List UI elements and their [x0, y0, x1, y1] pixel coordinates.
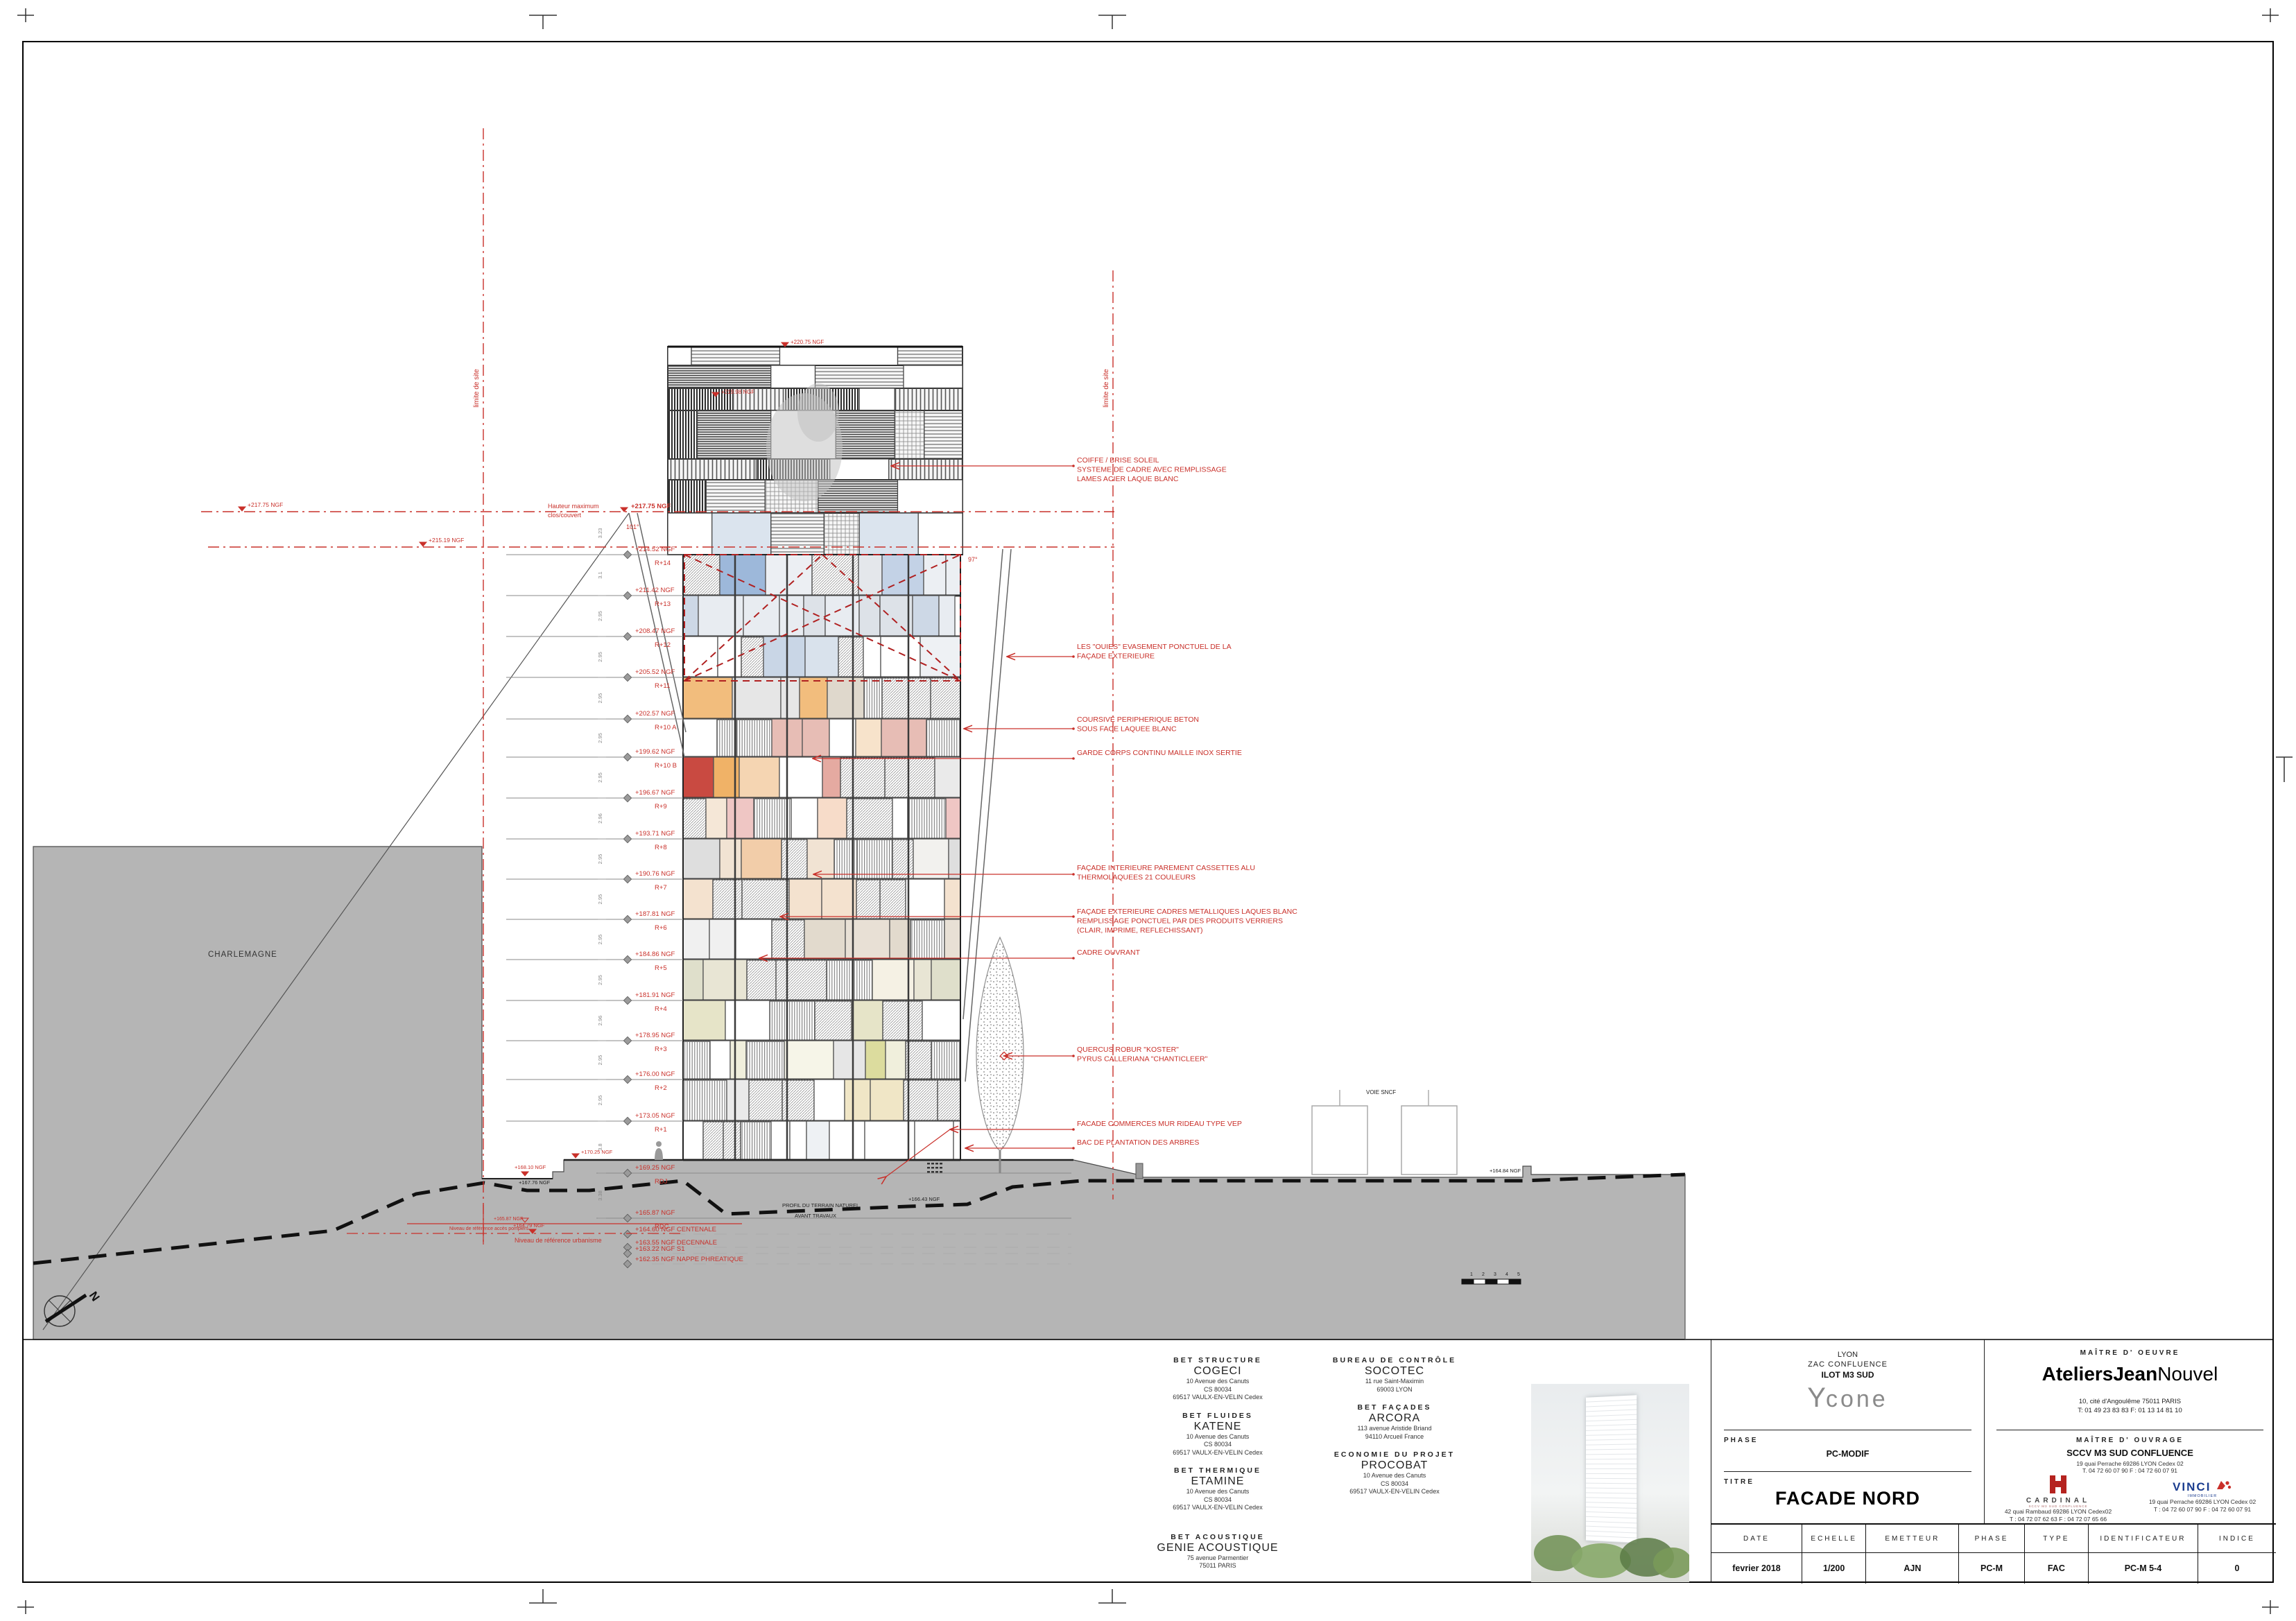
consultant-address: 10 Avenue des Canuts: [1137, 1488, 1298, 1496]
vinci-name: VINCI: [2173, 1480, 2211, 1493]
ycone-logo: Ycone: [1711, 1382, 1984, 1414]
level-name: R+8: [655, 844, 667, 851]
level-value: +208.47 NGF: [635, 627, 675, 635]
scale-number: 3: [1494, 1272, 1496, 1277]
water-level-label: +162.35 NGF NAPPE PHREATIQUE: [635, 1256, 743, 1263]
sheet-title: FACADE NORD: [1711, 1488, 1984, 1509]
consultant-address: 75011 PARIS: [1137, 1562, 1298, 1570]
annotation-text: THERMOLAQUEES 21 COULEURS: [1077, 874, 1196, 882]
ngf-top-label: +220.75 NGF: [791, 339, 824, 345]
dimension-label: 2.95: [597, 772, 603, 783]
consultant-name: COGECI: [1137, 1365, 1298, 1378]
ajn-ateliers: Ateliers: [2042, 1363, 2114, 1385]
level-name: R+2: [655, 1084, 667, 1092]
cardinal-address: 42 quai Rambaud 69286 LYON Cedex02: [1996, 1508, 2121, 1516]
level-name: R+1: [655, 1126, 667, 1134]
level-value: +199.62 NGF: [635, 748, 675, 756]
scale-number: 2: [1482, 1272, 1485, 1277]
level-value: +196.67 NGF: [635, 789, 675, 797]
level-name: RDJ: [655, 1178, 668, 1186]
dimension-label: 2.95: [597, 1055, 603, 1066]
charlemagne-label: CHARLEMAGNE: [208, 951, 277, 959]
table-value: AJN: [1866, 1553, 1958, 1584]
annotation-text: LES "OUIES" EVASEMENT PONCTUEL DE LA: [1077, 643, 1232, 651]
level-value: +165.87 NGF: [635, 1209, 675, 1217]
consultant-address: CS 80034: [1137, 1386, 1298, 1394]
table-header: TYPE: [2025, 1525, 2088, 1553]
level-name: R+13: [655, 600, 671, 608]
level-name: R+7: [655, 884, 667, 892]
consultant-address: 10 Avenue des Canuts: [1137, 1378, 1298, 1386]
table-value: PC-M: [1959, 1553, 2023, 1584]
ngf-top-label: +219.98 NGF: [721, 389, 754, 395]
water-level-label: +164.60 NGF CENTENALE: [635, 1226, 716, 1233]
annotation-text: COIFFE / BRISE SOLEIL: [1077, 456, 1159, 465]
level-name: R+6: [655, 924, 667, 932]
consultant-address: CS 80034: [1137, 1441, 1298, 1449]
titre-label: TITRE: [1724, 1478, 1754, 1486]
consultant-role: ECONOMIE DU PROJET: [1308, 1450, 1481, 1459]
table-header: ECHELLE: [1802, 1525, 1865, 1553]
title-block: LYON ZAC CONFLUENCE ILOT M3 SUD Ycone PH…: [1711, 1340, 2276, 1582]
ngf-label: +168.10 NGF: [515, 1164, 546, 1170]
level-name: R+3: [655, 1046, 667, 1053]
level-value: +176.00 NGF: [635, 1070, 675, 1078]
moe-label: MAÎTRE D' OEUVRE: [1984, 1349, 2276, 1357]
moa-name: SCCV M3 SUD CONFLUENCE: [1984, 1448, 2276, 1458]
hmax2-label: +215.19 NGF: [429, 537, 464, 544]
render-tower-silhouette: [1586, 1395, 1637, 1543]
annotation-text: FACADE COMMERCES MUR RIDEAU TYPE VEP: [1077, 1120, 1242, 1128]
consultants-column-1: BET STRUCTURECOGECI10 Avenue des CanutsC…: [1137, 1346, 1298, 1570]
table-column-emetteur: EMETTEURAJN: [1866, 1525, 1959, 1584]
consultant-address: 69003 LYON: [1308, 1386, 1481, 1394]
phase-value: PC-MODIF: [1711, 1449, 1984, 1459]
level-name: R+10 A: [655, 724, 677, 731]
phase-label: PHASE: [1724, 1437, 1758, 1444]
consultant-address: 75 avenue Parmentier: [1137, 1554, 1298, 1563]
level-value: +178.95 NGF: [635, 1032, 675, 1039]
consultant-address: 69517 VAULX-EN-VELIN Cedex: [1137, 1504, 1298, 1512]
scale-number: 4: [1505, 1272, 1508, 1277]
dimension-label: 2.95: [597, 854, 603, 865]
angle-label: 97°: [968, 556, 978, 563]
ref-level-value: +164.79 NGF: [513, 1222, 545, 1229]
consultant-address: 69517 VAULX-EN-VELIN Cedex: [1137, 1394, 1298, 1402]
table-column-phase: PHASEPC-M: [1959, 1525, 2024, 1584]
table-header: EMETTEUR: [1866, 1525, 1958, 1553]
voie-sncf: VOIE SNCF: [1312, 1089, 1457, 1174]
level-value: +169.25 NGF: [635, 1164, 675, 1172]
annotation-text: LAMES ACIER LAQUE BLANC: [1077, 475, 1179, 483]
consultant-role: BET STRUCTURE: [1137, 1356, 1298, 1364]
ngf-label: +166.43 NGF: [908, 1196, 940, 1202]
ref-level-value: +165.87 NGF: [494, 1217, 523, 1222]
divider: [1724, 1430, 1971, 1430]
cardinal-logo: CARDINAL SCCV M3 SUD CONFLUENCE 42 quai …: [1996, 1475, 2121, 1523]
ngf-label: +167.76 NGF: [519, 1179, 551, 1186]
scale-number: 5: [1517, 1272, 1520, 1277]
ycone-logo-rest: cone: [1826, 1386, 1888, 1412]
consultant-role: BET FLUIDES: [1137, 1412, 1298, 1420]
level-value: +187.81 NGF: [635, 910, 675, 918]
limite-de-site-label: limite de site: [473, 369, 481, 408]
cardinal-icon: [2044, 1475, 2072, 1493]
level-value: +211.42 NGF: [635, 587, 675, 594]
consultant-name: KATENE: [1137, 1421, 1298, 1433]
annotation-text: SYSTEME DE CADRE AVEC REMPLISSAGE: [1077, 466, 1227, 474]
tree: [976, 937, 1024, 1173]
consultant-address: 10 Avenue des Canuts: [1137, 1433, 1298, 1441]
table-header: DATE: [1711, 1525, 1802, 1553]
render-foliage: [1653, 1548, 1689, 1578]
level-name: R+5: [655, 964, 667, 972]
annotation-text: SOUS FACE LAQUEE BLANC: [1077, 725, 1177, 734]
dimension-label: 3.1: [597, 571, 603, 578]
consultant-role: BET ACOUSTIQUE: [1137, 1533, 1298, 1541]
project-lot: ILOT M3 SUD: [1711, 1370, 1984, 1380]
hmax-note: clos/couvert: [548, 512, 582, 519]
table-column-type: TYPEFAC: [2025, 1525, 2089, 1584]
dimension-label: 2.96: [597, 1016, 603, 1026]
moe-address: 10, cité d'Angoulême 75011 PARIS: [1984, 1398, 2276, 1405]
dimension-label: 2.95: [597, 894, 603, 905]
project-city: LYON: [1711, 1351, 1984, 1359]
voie-sncf-label: VOIE SNCF: [1366, 1089, 1396, 1095]
dimension-label: 2.95: [597, 1095, 603, 1106]
hmax-note: Hauteur maximum: [548, 503, 599, 510]
level-value: +205.52 NGF: [635, 668, 675, 676]
consultant-address: CS 80034: [1308, 1480, 1481, 1489]
divider: [1996, 1430, 2263, 1430]
ycone-logo-y: Y: [1807, 1382, 1826, 1413]
dimension-label: 2.95: [597, 693, 603, 704]
consultant-address: 94110 Arcueil France: [1308, 1433, 1481, 1441]
table-column-echelle: ECHELLE1/200: [1802, 1525, 1866, 1584]
level-value: +173.05 NGF: [635, 1112, 675, 1120]
consultant-role: BET FAÇADES: [1308, 1403, 1481, 1412]
vinci-logo: VINCI IMMOBILIER 19 quai Perrache 69286 …: [2140, 1480, 2265, 1513]
consultant-name: ARCORA: [1308, 1412, 1481, 1425]
consultant-role: BET THERMIQUE: [1137, 1466, 1298, 1475]
tower-facade: [683, 555, 960, 1160]
level-name: R+10 B: [655, 762, 677, 770]
ajn-nouvel: Nouvel: [2157, 1363, 2218, 1385]
annotation-text: COURSIVE PERIPHERIQUE BETON: [1077, 716, 1199, 724]
dimension-label: 2.95: [597, 935, 603, 945]
dimension-label: 2.95: [597, 733, 603, 743]
level-value: +193.71 NGF: [635, 830, 675, 838]
table-value: PC-M 5-4: [2089, 1553, 2198, 1584]
consultant-name: PROCOBAT: [1308, 1459, 1481, 1472]
ngf-label: +164.84 NGF: [1490, 1168, 1521, 1174]
table-value: 1/200: [1802, 1553, 1865, 1584]
project-render-thumbnail: [1531, 1384, 1689, 1582]
scale-number: 1: [1470, 1272, 1473, 1277]
annotation-text: CADRE OUVRANT: [1077, 948, 1141, 957]
divider: [1724, 1471, 1971, 1472]
water-level-label: +163.22 NGF S1: [635, 1245, 685, 1253]
dimension-label: 2.95: [597, 975, 603, 985]
annotation-text: (CLAIR, IMPRIME, REFLECHISSANT): [1077, 926, 1202, 935]
vinci-icon: [2214, 1480, 2232, 1492]
level-name: R+9: [655, 803, 667, 810]
consultant-role: BUREAU DE CONTRÔLE: [1308, 1356, 1481, 1364]
consultant-address: CS 80034: [1137, 1496, 1298, 1505]
table-header: PHASE: [1959, 1525, 2023, 1553]
table-value: FAC: [2025, 1553, 2088, 1584]
annotation-text: GARDE CORPS CONTINU MAILLE INOX SERTIE: [1077, 749, 1242, 757]
dimension-label: 2.95: [597, 611, 603, 621]
table-column-indice: INDICE0: [2198, 1525, 2276, 1584]
table-value: 0: [2198, 1553, 2276, 1584]
moa-label: MAÎTRE D' OUVRAGE: [1984, 1437, 2276, 1444]
annotation-text: PYRUS CALLERIANA "CHANTICLEER": [1077, 1055, 1208, 1064]
cardinal-phone: T : 04 72 07 62 63 F : 04 72 07 65 66: [1996, 1516, 2121, 1523]
consultant-address: 113 avenue Aristide Briand: [1308, 1425, 1481, 1433]
project-zone: ZAC CONFLUENCE: [1711, 1360, 1984, 1369]
annotation-text: REMPLISSAGE PONCTUEL PAR DES PRODUITS VE…: [1077, 917, 1283, 926]
consultant-name: GENIE ACOUSTIQUE: [1137, 1542, 1298, 1554]
tower-crown: +220.75 NGF+219.98 NGF: [668, 339, 963, 555]
moe-phone: T: 01 49 23 83 83 F: 01 13 14 81 10: [1984, 1407, 2276, 1414]
level-value: +184.86 NGF: [635, 951, 675, 958]
annotation-text: BAC DE PLANTATION DES ARBRES: [1077, 1138, 1199, 1147]
dimension-label: 2.95: [597, 652, 603, 662]
level-value: +202.57 NGF: [635, 710, 675, 718]
consultant-address: 11 rue Saint-Maximin: [1308, 1378, 1481, 1386]
annotation-text: QUERCUS ROBUR "KOSTER": [1077, 1046, 1179, 1054]
annotation-text: FAÇADE EXTERIEURE: [1077, 652, 1155, 661]
hmax-label: +217.75 NGF: [631, 503, 671, 510]
annotation-text: FAÇADE EXTERIEURE CADRES METALLIQUES LAQ…: [1077, 908, 1297, 916]
profil-terrain-label: PROFIL DU TERRAIN NATUREL: [782, 1202, 859, 1208]
table-value: fevrier 2018: [1711, 1553, 1802, 1584]
angle-label: 101°: [626, 523, 639, 530]
table-header: IDENTIFICATEUR: [2089, 1525, 2198, 1553]
moa-address: 19 quai Perrache 69286 LYON Cedex 02: [1984, 1460, 2276, 1467]
consultant-address: 10 Avenue des Canuts: [1308, 1472, 1481, 1480]
table-column-date: DATEfevrier 2018: [1711, 1525, 1802, 1584]
consultant-name: ETAMINE: [1137, 1475, 1298, 1488]
level-name: R+12: [655, 641, 671, 649]
level-name: R+4: [655, 1005, 667, 1013]
vinci-address: 19 quai Perrache 69286 LYON Cedex 02: [2140, 1498, 2265, 1506]
dimension-label: 3.38: [597, 1190, 603, 1201]
cardinal-name: CARDINAL: [1996, 1497, 2121, 1505]
ajn-logo: AteliersJeanNouvel: [1984, 1363, 2276, 1385]
level-name: R+11: [655, 682, 670, 690]
ajn-jean: Jean: [2113, 1363, 2157, 1385]
limite-de-site-label: limite de site: [1103, 369, 1110, 408]
level-value: +214.52 NGF: [635, 546, 675, 553]
dimension-label: 3.23: [597, 528, 603, 539]
level-name: R+14: [655, 560, 671, 567]
hmax-label: +217.75 NGF: [248, 501, 283, 508]
table-column-identificateur: IDENTIFICATEURPC-M 5-4: [2089, 1525, 2198, 1584]
dimension-label: 2.96: [597, 813, 603, 824]
vinci-phone: T : 04 72 60 07 90 F : 04 72 60 07 91: [2140, 1506, 2265, 1514]
consultants-column-2: BUREAU DE CONTRÔLESOCOTEC11 rue Saint-Ma…: [1308, 1346, 1481, 1496]
level-value: +181.91 NGF: [635, 991, 675, 999]
level-value: +190.76 NGF: [635, 870, 675, 878]
ref-level-label: Niveau de référence urbanisme: [515, 1237, 602, 1244]
moa-phone: T. 04 72 60 07 90 F : 04 72 60 07 91: [1984, 1467, 2276, 1474]
title-table: DATEfevrier 2018ECHELLE1/200EMETTEURAJNP…: [1711, 1523, 2276, 1584]
annotation-text: FAÇADE INTERIEURE PAREMENT CASSETTES ALU: [1077, 864, 1255, 872]
drawing-sheet: CHARLEMAGNENPROFIL DU TERRAIN NATURELAVA…: [0, 0, 2296, 1621]
ngf-label: +170.25 NGF: [581, 1149, 613, 1155]
table-header: INDICE: [2198, 1525, 2276, 1553]
consultant-name: SOCOTEC: [1308, 1365, 1481, 1378]
consultant-address: 69517 VAULX-EN-VELIN Cedex: [1137, 1449, 1298, 1457]
consultant-address: 69517 VAULX-EN-VELIN Cedex: [1308, 1488, 1481, 1496]
